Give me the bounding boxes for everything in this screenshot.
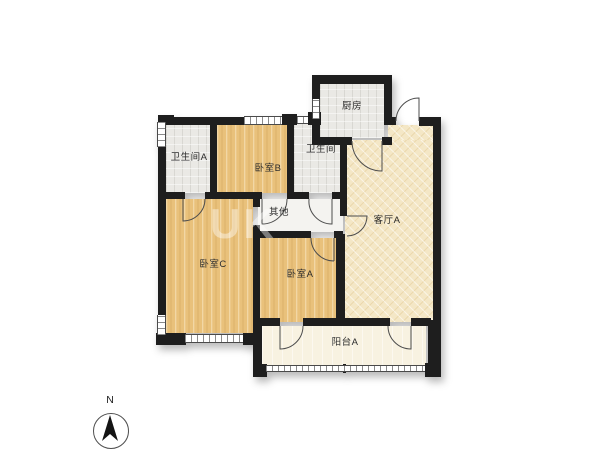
room-label-balcony-a: 阳台A [332,334,359,348]
room-label-other: 其他 [269,204,289,218]
floor-plan: UK 卫生间A 卧室B 卫生间 厨房 客厅A 其他 卧室C 卧室A 阳台A N [0,0,600,450]
compass-north-label: N [106,394,114,406]
room-label-living-room: 客厅A [374,212,401,226]
window [185,334,243,343]
wall-segment [210,123,217,195]
wall-segment [166,117,244,125]
wall-segment [411,318,431,326]
wall-segment [334,231,343,238]
wall-segment [253,238,260,322]
compass-icon [93,413,129,449]
wall-segment [433,117,441,327]
window [244,116,282,125]
window [312,99,320,119]
wall-segment [425,363,438,377]
wall-segment [303,318,390,326]
room-bedroom-a-floor [260,238,338,322]
room-label-kitchen: 厨房 [342,98,362,112]
balcony-window-band [266,365,425,372]
watermark-text: UK [210,200,277,248]
room-label-bedroom-c: 卧室C [199,256,226,270]
wall-segment [336,234,345,322]
window [297,116,308,124]
room-label-bedroom-a: 卧室A [287,266,314,280]
wall-segment [390,117,396,125]
wall-segment [287,123,294,195]
wall-segment [158,192,185,199]
room-label-bedroom-b: 卧室B [255,160,282,174]
wall-segment [312,75,392,84]
window [157,315,166,335]
room-bedroom-b-floor [217,123,287,193]
room-living-room-floor [345,140,433,322]
building-structure [0,0,600,450]
room-label-bathroom-a: 卫生间A [171,149,208,163]
wall-segment [158,145,166,317]
wall-segment [340,137,347,216]
window [157,122,166,147]
wall-segment [382,137,392,145]
room-label-bathroom: 卫生间 [306,141,336,155]
wall-segment [287,192,309,199]
wall-segment [253,318,280,326]
